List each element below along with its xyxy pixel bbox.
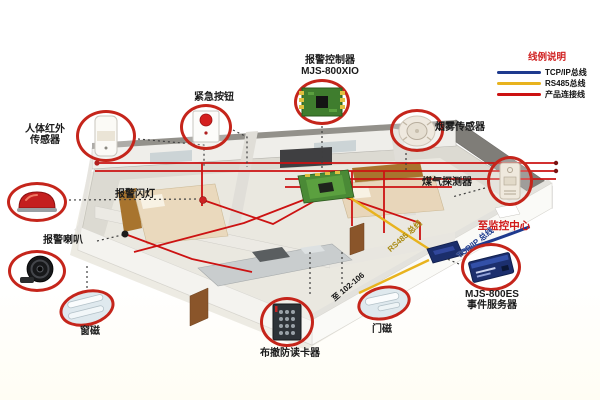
legend-item-label: RS485总线 [545, 78, 585, 89]
pir-sensor-label: 人体红外 传感器 [12, 124, 78, 146]
cabinet [280, 147, 332, 168]
pir-label-line2: 传感器 [12, 135, 78, 146]
horn-mount-ball [122, 231, 129, 238]
controller-label-line2: MJS-800XIO [270, 66, 390, 77]
pir-label-line1: 人体红外 [12, 124, 78, 135]
card-reader-label: 布撤防读卡器 [235, 348, 345, 359]
strobe-light-icon [14, 188, 60, 216]
gas-detector-icon [496, 161, 524, 201]
legend-item-product: 产品连接线 [497, 89, 597, 99]
horn-speaker-callout [8, 250, 66, 292]
gas-detector-label: 煤气探测器 [408, 177, 486, 188]
horn-speaker-icon [16, 255, 58, 287]
emergency-button-label: 紧急按钮 [174, 92, 254, 103]
strobe-light-label: 报警闪灯 [100, 189, 170, 200]
legend: 线例说明 TCP/IP总线 RS485总线 产品连接线 [497, 49, 597, 100]
controller-callout [294, 79, 350, 125]
gas-detector-callout [487, 156, 533, 206]
emergency-button-icon [188, 109, 224, 145]
controller-label-line1: 报警控制器 [270, 55, 390, 66]
horn-speaker-label: 报警喇叭 [30, 235, 96, 246]
smoke-sensor-label: 烟雾传感器 [422, 122, 498, 133]
strobe-light-callout [7, 182, 67, 222]
door-magnet-label: 门磁 [354, 324, 410, 335]
to-monitor-center-label: 至监控中心 [452, 221, 556, 232]
controller-board-inhouse [298, 170, 354, 203]
legend-item-tcpip: TCP/IP总线 [497, 67, 597, 77]
window-magnet-icon [63, 291, 111, 325]
strobe-mount-ball [200, 197, 207, 204]
server-label-line2: 事件服务器 [438, 300, 546, 311]
emergency-button-callout [180, 104, 232, 150]
product-line-swatch [497, 93, 541, 96]
legend-title: 线例说明 [497, 49, 597, 63]
tcpip-line-swatch [497, 71, 541, 74]
legend-item-rs485: RS485总线 [497, 78, 597, 88]
door-magnet-icon [361, 288, 407, 318]
security-system-diagram: 线例说明 TCP/IP总线 RS485总线 产品连接线 [0, 0, 600, 400]
controller-label: 报警控制器 MJS-800XIO [270, 55, 390, 77]
event-server-icon [467, 249, 515, 285]
wire-end-dot [554, 169, 558, 173]
pir-sensor-callout [76, 110, 136, 162]
controller-board-icon [299, 85, 345, 119]
door [350, 223, 364, 255]
server-label-line1: MJS-800ES [438, 289, 546, 300]
rs485-line-swatch [497, 82, 541, 85]
wire-end-dot [554, 161, 558, 165]
legend-item-label: TCP/IP总线 [545, 67, 587, 78]
event-server-label: MJS-800ES 事件服务器 [438, 289, 546, 311]
window-magnet-label: 窗磁 [62, 326, 118, 337]
card-reader-callout [260, 297, 314, 347]
legend-item-label: 产品连接线 [545, 89, 585, 100]
pir-sensor-icon [91, 115, 121, 157]
card-reader-icon [270, 302, 304, 342]
